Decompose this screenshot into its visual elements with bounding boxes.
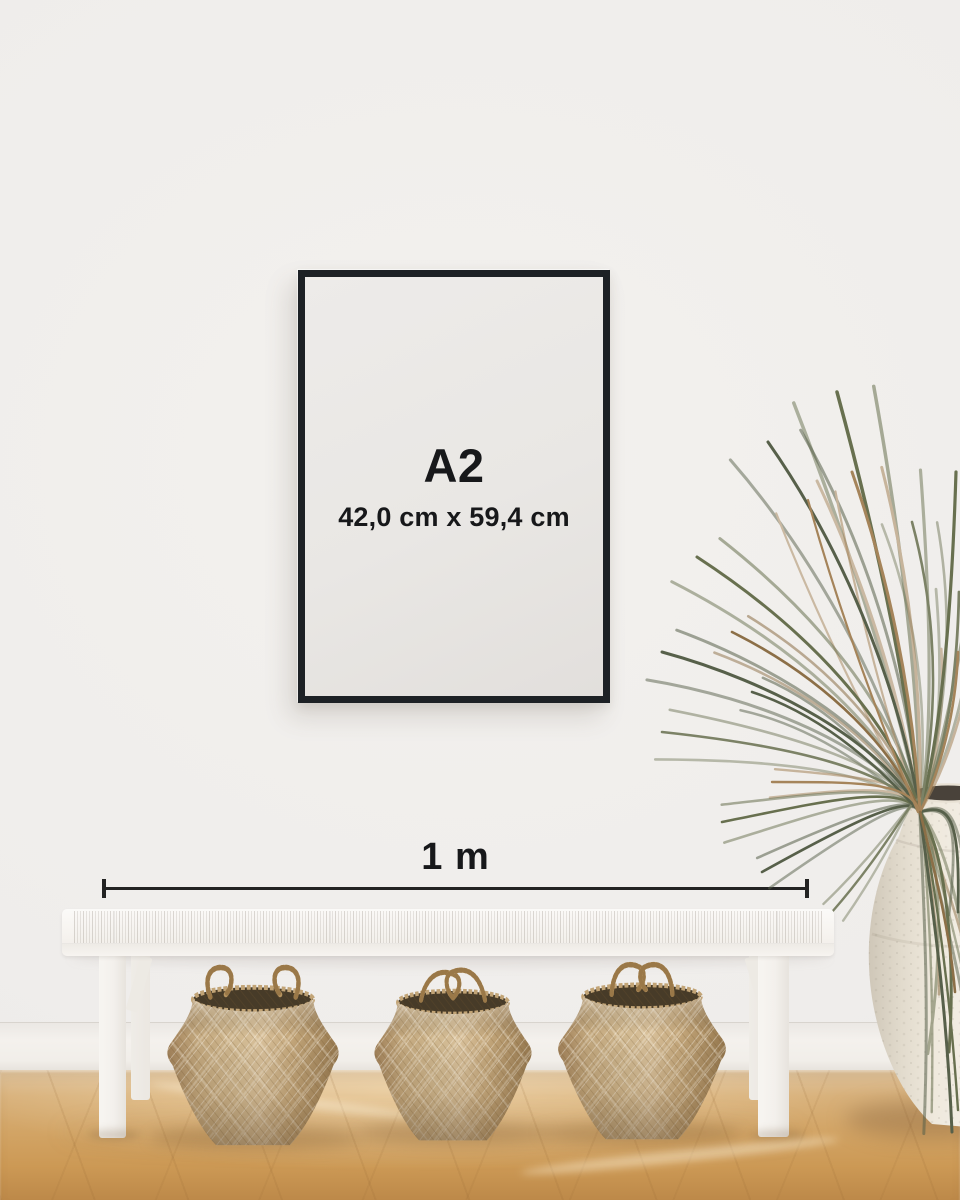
basket-right [547, 961, 737, 1144]
bench-woven-seat [74, 911, 822, 944]
bench-front-rail [62, 943, 834, 956]
bench-seam [114, 911, 115, 944]
leg-shadow [88, 1130, 140, 1140]
ruler-end-cap-left [102, 879, 106, 898]
poster-size-label: A2 [423, 442, 484, 489]
frame-size-guide-scene: A2 42,0 cm x 59,4 cm 1 m [0, 0, 960, 1200]
poster-dimensions-label: 42,0 cm x 59,4 cm [338, 504, 570, 531]
bench-leg-front-right [758, 954, 789, 1137]
bench-leg-front-left [99, 954, 126, 1138]
picture-frame: A2 42,0 cm x 59,4 cm [298, 270, 610, 703]
basket-middle [364, 968, 542, 1145]
basket-left [156, 963, 350, 1150]
leg-shadow [750, 1130, 806, 1140]
bench-seam [330, 911, 331, 944]
bench-seam [777, 911, 778, 944]
bench-top [62, 909, 834, 956]
